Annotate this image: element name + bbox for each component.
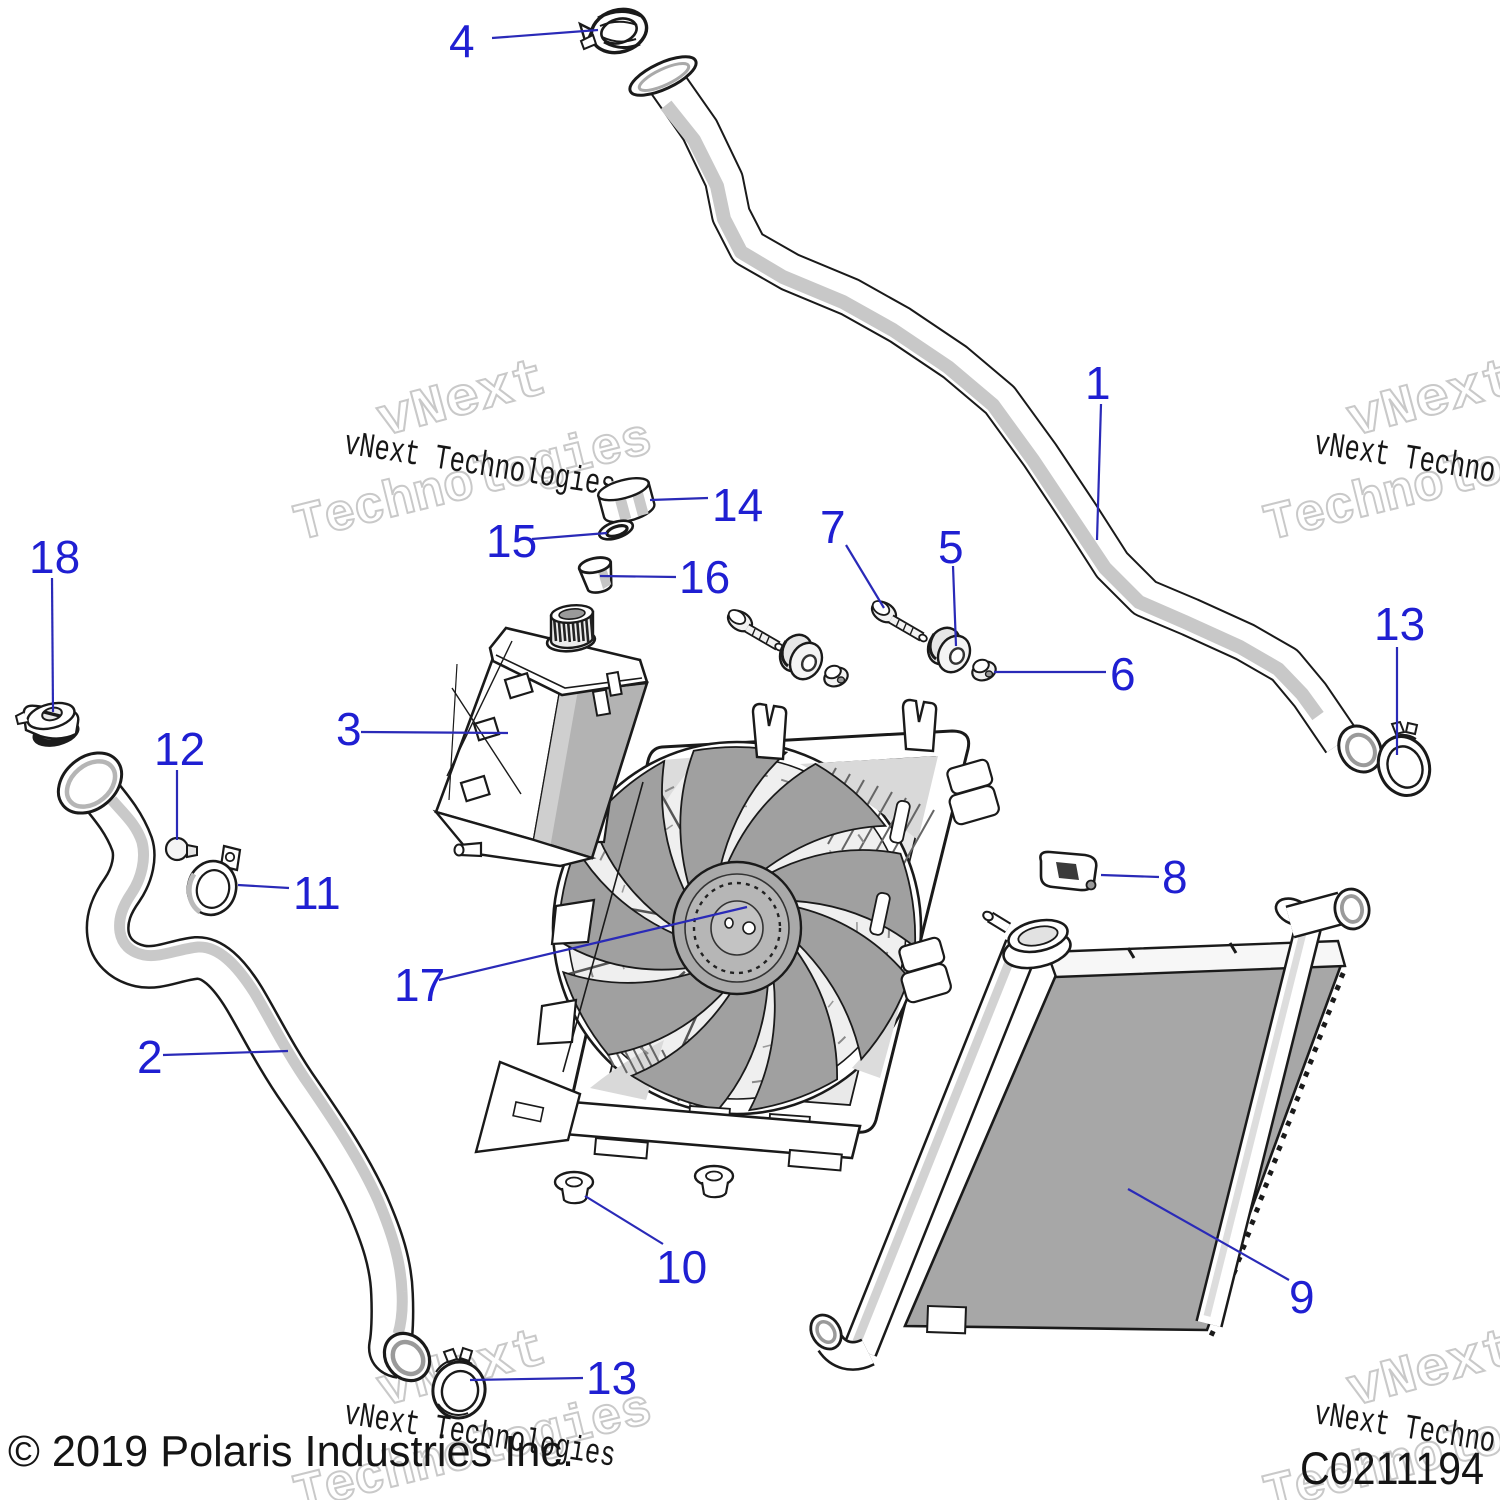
svg-text:8: 8 <box>1162 851 1188 903</box>
svg-text:1: 1 <box>1085 357 1111 409</box>
svg-text:16: 16 <box>679 551 730 603</box>
svg-text:3: 3 <box>336 703 362 755</box>
svg-text:C0211194: C0211194 <box>1300 1443 1484 1494</box>
svg-text:13: 13 <box>1374 598 1425 650</box>
svg-text:17: 17 <box>394 959 445 1011</box>
svg-text:12: 12 <box>154 723 205 775</box>
svg-text:11: 11 <box>293 867 341 919</box>
svg-text:2: 2 <box>137 1031 163 1083</box>
svg-text:14: 14 <box>712 479 763 531</box>
svg-text:7: 7 <box>820 501 846 553</box>
svg-text:9: 9 <box>1289 1271 1315 1323</box>
svg-text:18: 18 <box>29 531 80 583</box>
svg-text:10: 10 <box>656 1241 707 1293</box>
svg-text:© 2019 Polaris Industries Inc.: © 2019 Polaris Industries Inc. <box>8 1427 574 1476</box>
svg-text:4: 4 <box>449 15 475 67</box>
svg-text:13: 13 <box>586 1352 637 1404</box>
svg-text:5: 5 <box>938 521 964 573</box>
svg-text:6: 6 <box>1110 648 1136 700</box>
svg-text:15: 15 <box>486 515 537 567</box>
